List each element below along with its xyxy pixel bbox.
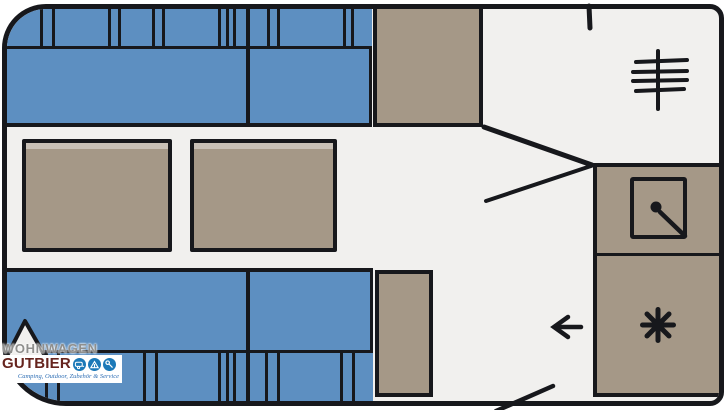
cushion-divider xyxy=(152,4,155,46)
dealer-logo: WOHNWAGEN GUTBIER xyxy=(0,342,122,383)
rear-bench-seat xyxy=(2,268,373,350)
caravan-icon xyxy=(73,358,86,371)
logo-tagline: Camping, Outdoor, Zubehör & Service xyxy=(2,372,120,381)
table-left xyxy=(22,139,172,252)
cushion-divider xyxy=(277,4,280,46)
cushion-divider xyxy=(108,4,111,46)
cushion-divider xyxy=(218,4,221,46)
cushion-divider xyxy=(233,353,236,405)
front-bench-backrest xyxy=(2,4,372,49)
wardrobe xyxy=(373,5,483,127)
front-bench-seat xyxy=(2,49,372,127)
logo-brand-top: WOHNWAGEN xyxy=(0,342,122,355)
cushion-divider xyxy=(162,4,165,46)
sink xyxy=(630,177,687,239)
cushion-divider xyxy=(218,353,221,405)
seat-divider-line xyxy=(246,4,250,127)
tent-icon xyxy=(88,358,101,371)
wrench-icon xyxy=(103,358,116,371)
cushion-divider xyxy=(246,353,250,405)
cushion-divider xyxy=(155,353,158,405)
cushion-divider xyxy=(118,4,121,46)
cushion-divider xyxy=(267,4,270,46)
cushion-divider xyxy=(340,353,343,405)
kitchen-counter xyxy=(593,163,724,397)
logo-brand-main: GUTBIER xyxy=(2,356,71,372)
cushion-divider xyxy=(265,353,268,405)
cushion-divider xyxy=(351,4,354,46)
cushion-divider xyxy=(226,353,229,405)
logo-box: GUTBIER xyxy=(0,355,122,383)
table-right xyxy=(190,139,337,252)
cushion-divider xyxy=(40,4,43,46)
kitchen-divider-line xyxy=(597,253,724,256)
rear-cabinet xyxy=(375,270,433,397)
cushion-divider xyxy=(233,4,236,46)
cushion-divider xyxy=(277,353,280,405)
cushion-divider xyxy=(343,4,346,46)
cushion-divider xyxy=(143,353,146,405)
cushion-divider xyxy=(226,4,229,46)
cushion-divider xyxy=(352,353,355,405)
floorplan-image: WOHNWAGEN GUTBIER xyxy=(0,0,728,410)
cushion-divider xyxy=(52,4,55,46)
